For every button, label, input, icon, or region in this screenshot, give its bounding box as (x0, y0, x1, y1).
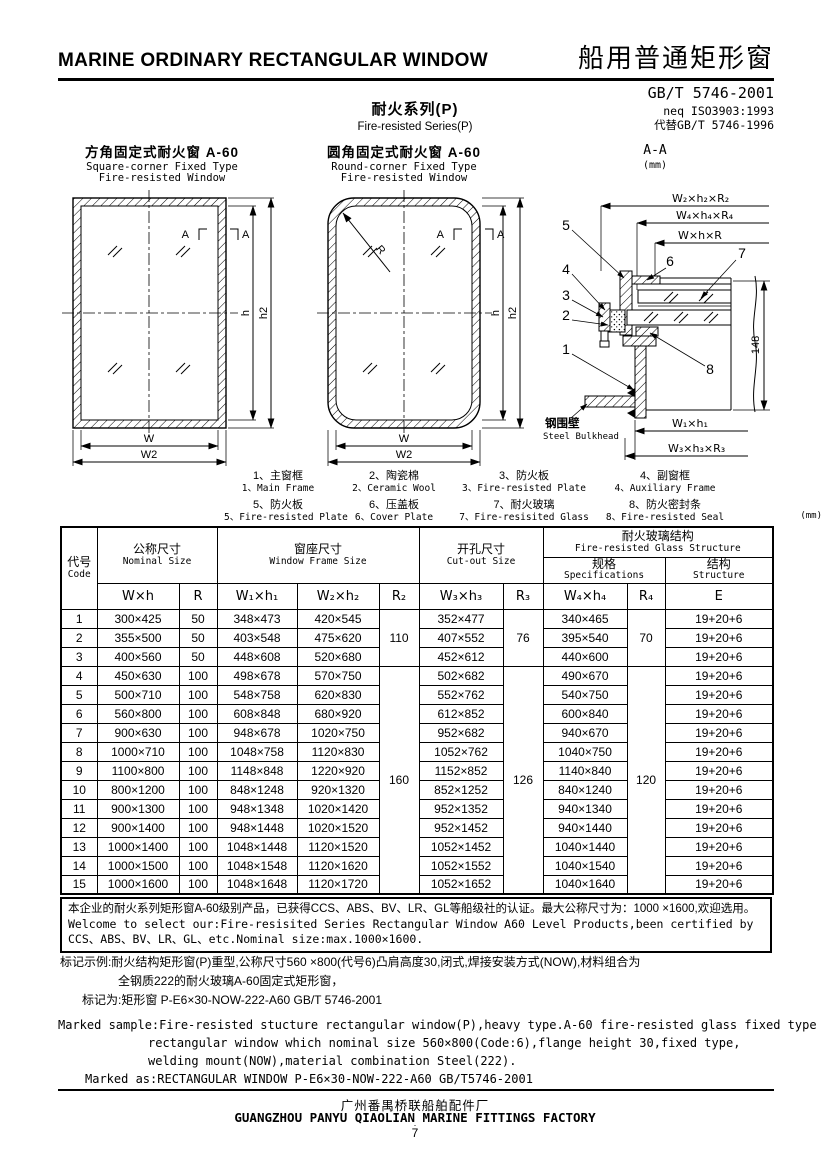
cell-wh: 300×425 (97, 609, 179, 628)
cell-w1h1: 1048×1648 (217, 875, 297, 894)
table-header-groups: 代号Code 公称尺寸Nominal Size 窗座尺寸Window Frame… (61, 527, 773, 557)
cell-w4h4: 540×750 (543, 685, 627, 704)
cell-wh: 355×500 (97, 628, 179, 647)
cell-w1h1: 948×678 (217, 723, 297, 742)
marking-en-line4: Marked as:RECTANGULAR WINDOW P-E6×30-NOW… (58, 1070, 817, 1088)
cell-wh: 400×560 (97, 647, 179, 666)
cell-e: 19+20+6 (665, 685, 773, 704)
part-number-1: 1 (562, 341, 570, 357)
cell-w4h4: 1140×840 (543, 761, 627, 780)
cell-w4h4: 1040×1540 (543, 856, 627, 875)
section-a-a-figure: A-A (mm) W₂×h₂×R₂ W₄×h₄×R₄ W×h×R (543, 143, 770, 460)
legend-item-1: 1、主窗框1、Main Frame (224, 470, 332, 494)
cell-code: 9 (61, 761, 97, 780)
cell-r: 50 (179, 647, 217, 666)
part-number-3: 3 (562, 287, 570, 303)
header-rule (58, 78, 774, 81)
note-line-en2: CCS、ABS、BV、LR、GL、etc.Nominal size:max.10… (68, 932, 764, 947)
cell-w2h2: 520×680 (297, 647, 379, 666)
square-corner-window-figure: 方角固定式耐火窗 A-60 Square-corner Fixed Type F… (62, 144, 274, 466)
page-title-en: MARINE ORDINARY RECTANGULAR WINDOW (58, 50, 488, 72)
header-nominal-size: 公称尺寸Nominal Size (97, 527, 217, 583)
cell-w2h2: 570×750 (297, 666, 379, 685)
bulkhead-label-cn: 钢围壁 (545, 416, 580, 430)
cell-r: 100 (179, 818, 217, 837)
cell-w4h4: 340×465 (543, 609, 627, 628)
col-w2h2: W₂×h₂ (297, 583, 379, 609)
cell-r: 100 (179, 685, 217, 704)
cell-w4h4: 600×840 (543, 704, 627, 723)
cell-r: 100 (179, 875, 217, 894)
cell-code: 8 (61, 742, 97, 761)
cell-r: 50 (179, 628, 217, 647)
cell-r3-group: 126 (503, 666, 543, 894)
col-w4h4: W₄×h₄ (543, 583, 627, 609)
cell-e: 19+20+6 (665, 666, 773, 685)
dim-label-h: h (490, 310, 502, 316)
page-number: 7 (0, 1126, 830, 1140)
col-wh: W×h (97, 583, 179, 609)
marking-cn-line2: 全钢质222的耐火玻璃A-60固定式矩形窗， (60, 972, 640, 991)
cell-w1h1: 548×758 (217, 685, 297, 704)
round-corner-window-figure: 圆角固定式耐火窗 A-60 Round-corner Fixed Type Fi… (317, 144, 524, 466)
page-title-cn: 船用普通矩形窗 (578, 38, 774, 75)
series-title-cn: 耐火系列(P) (0, 98, 830, 119)
specification-table-wrap: 代号Code 公称尺寸Nominal Size 窗座尺寸Window Frame… (60, 526, 774, 895)
square-window-title-cn: 方角固定式耐火窗 A-60 (85, 144, 239, 160)
certification-note-box: 本企业的耐火系列矩形窗A-60级别产品，已获得CCS、ABS、BV、LR、GL等… (60, 897, 772, 953)
cell-r2-group: 160 (379, 666, 419, 894)
legend-item-6: 6、压盖板6、Cover Plate (338, 499, 450, 523)
cell-e: 19+20+6 (665, 647, 773, 666)
note-line-cn: 本企业的耐火系列矩形窗A-60级别产品，已获得CCS、ABS、BV、LR、GL等… (68, 902, 764, 917)
col-e: E (665, 583, 773, 609)
header-cutout-size: 开孔尺寸Cut-out Size (419, 527, 543, 583)
cell-wh: 500×710 (97, 685, 179, 704)
cell-code: 13 (61, 837, 97, 856)
cell-w1h1: 848×1248 (217, 780, 297, 799)
section-marker-a-right: A (497, 229, 505, 241)
cell-w4h4: 440×600 (543, 647, 627, 666)
header-structure: 结构Structure (665, 557, 773, 583)
cell-code: 6 (61, 704, 97, 723)
section-unit: (mm) (643, 160, 667, 171)
cell-w3h3: 1152×852 (419, 761, 503, 780)
cell-w1h1: 498×678 (217, 666, 297, 685)
cell-wh: 900×1300 (97, 799, 179, 818)
cell-r: 100 (179, 780, 217, 799)
cell-r: 100 (179, 704, 217, 723)
marking-cn-line1: 标记示例:耐火结构矩形窗(P)重型,公称尺寸560 ×800(代号6)凸肩高度3… (60, 953, 640, 972)
bulkhead-label-en: Steel Bulkhead (543, 432, 619, 442)
cell-w3h3: 407×552 (419, 628, 503, 647)
cell-w1h1: 1148×848 (217, 761, 297, 780)
cell-code: 1 (61, 609, 97, 628)
cell-r3-group: 76 (503, 609, 543, 666)
cell-w3h3: 1052×1452 (419, 837, 503, 856)
cell-code: 10 (61, 780, 97, 799)
cell-w1h1: 1048×758 (217, 742, 297, 761)
section-title: A-A (643, 143, 667, 158)
cell-w3h3: 1052×1552 (419, 856, 503, 875)
dim-label-w: W (144, 433, 155, 445)
cell-w4h4: 940×1340 (543, 799, 627, 818)
cell-r: 100 (179, 856, 217, 875)
section-marker-a-left: A (437, 229, 445, 241)
cell-e: 19+20+6 (665, 837, 773, 856)
marking-en-line3: welding mount(NOW),material combination … (58, 1052, 817, 1070)
cell-w4h4: 1040×750 (543, 742, 627, 761)
document-page: MARINE ORDINARY RECTANGULAR WINDOW 船用普通矩… (0, 0, 830, 1175)
parts-legend: 1、主窗框1、Main Frame 2、陶瓷棉2、Ceramic Wool 3、… (224, 470, 694, 523)
cell-w4h4: 940×670 (543, 723, 627, 742)
dim-label-h2: h2 (507, 307, 519, 319)
marking-example-en: Marked sample:Fire-resisted stucture rec… (58, 1016, 817, 1088)
cell-w2h2: 420×545 (297, 609, 379, 628)
cell-e: 19+20+6 (665, 761, 773, 780)
note-line-en1: Welcome to select our:Fire-resisited Ser… (68, 917, 764, 932)
header-window-frame-size: 窗座尺寸Window Frame Size (217, 527, 419, 583)
cell-w2h2: 475×620 (297, 628, 379, 647)
marking-en-line1: Marked sample:Fire-resisted stucture rec… (58, 1016, 817, 1034)
marking-example-cn: 标记示例:耐火结构矩形窗(P)重型,公称尺寸560 ×800(代号6)凸肩高度3… (60, 953, 640, 1011)
cell-e: 19+20+6 (665, 875, 773, 894)
cell-w2h2: 620×830 (297, 685, 379, 704)
cell-code: 12 (61, 818, 97, 837)
table-row: 1 300×425 50 348×473 420×545 110 352×477… (61, 609, 773, 628)
cell-w2h2: 1020×1420 (297, 799, 379, 818)
cell-e: 19+20+6 (665, 780, 773, 799)
cell-w3h3: 1052×762 (419, 742, 503, 761)
part-number-7: 7 (738, 245, 746, 261)
cell-code: 15 (61, 875, 97, 894)
part-number-8: 8 (706, 361, 714, 377)
dim-label-w: W (399, 433, 410, 445)
cell-r: 100 (179, 799, 217, 818)
cell-w1h1: 1048×1448 (217, 837, 297, 856)
dim-label-w1h1: W₁×h₁ (672, 417, 708, 430)
dim-label-w2h2r2: W₂×h₂×R₂ (672, 192, 729, 205)
cell-r4-group: 120 (627, 666, 665, 894)
cell-e: 19+20+6 (665, 723, 773, 742)
part-number-4: 4 (562, 261, 570, 277)
cell-w1h1: 1048×1548 (217, 856, 297, 875)
cell-r: 100 (179, 723, 217, 742)
cell-r: 100 (179, 742, 217, 761)
cell-r: 50 (179, 609, 217, 628)
cell-w4h4: 840×1240 (543, 780, 627, 799)
cell-w3h3: 502×682 (419, 666, 503, 685)
cell-w3h3: 552×762 (419, 685, 503, 704)
col-r2: R₂ (379, 583, 419, 609)
cell-r: 100 (179, 666, 217, 685)
cell-w1h1: 608×848 (217, 704, 297, 723)
header-glass-structure: 耐火玻璃结构Fire-resisted Glass Structure (543, 527, 773, 557)
cell-w2h2: 1120×1620 (297, 856, 379, 875)
legend-item-4: 4、副窗框4、Auxiliary Frame (598, 470, 732, 494)
cell-code: 2 (61, 628, 97, 647)
cell-wh: 1100×800 (97, 761, 179, 780)
header-code: 代号Code (61, 527, 97, 609)
marking-cn-line3: 标记为:矩形窗 P-E6×30-NOW-222-A60 GB/T 5746-20… (60, 991, 640, 1010)
cell-w4h4: 940×1440 (543, 818, 627, 837)
cell-wh: 900×630 (97, 723, 179, 742)
cell-e: 19+20+6 (665, 856, 773, 875)
series-title-en: Fire-resisted Series(P) (0, 121, 830, 133)
specification-table: 代号Code 公称尺寸Nominal Size 窗座尺寸Window Frame… (60, 526, 774, 895)
dim-label-w2: W2 (396, 449, 413, 461)
cell-w4h4: 490×670 (543, 666, 627, 685)
col-w1h1: W₁×h₁ (217, 583, 297, 609)
dim-label-w2: W2 (141, 449, 158, 461)
cell-wh: 560×800 (97, 704, 179, 723)
cell-w3h3: 1052×1652 (419, 875, 503, 894)
technical-drawings: 方角固定式耐火窗 A-60 Square-corner Fixed Type F… (58, 138, 790, 472)
cell-w4h4: 1040×1440 (543, 837, 627, 856)
cell-w1h1: 948×1448 (217, 818, 297, 837)
part-number-6: 6 (666, 253, 674, 269)
table-row: 4 450×630 100 498×678 570×750 160 502×68… (61, 666, 773, 685)
cell-wh: 1000×1600 (97, 875, 179, 894)
cell-w2h2: 1220×920 (297, 761, 379, 780)
cell-e: 19+20+6 (665, 704, 773, 723)
part-number-5: 5 (562, 217, 570, 233)
cell-w3h3: 612×852 (419, 704, 503, 723)
cell-w3h3: 352×477 (419, 609, 503, 628)
marking-en-line2: rectangular window which nominal size 56… (58, 1034, 817, 1052)
col-w3h3: W₃×h₃ (419, 583, 503, 609)
cell-w2h2: 1120×1520 (297, 837, 379, 856)
cell-r: 100 (179, 761, 217, 780)
section-marker-a-right: A (242, 229, 250, 241)
section-marker-a-left: A (182, 229, 190, 241)
cell-wh: 800×1200 (97, 780, 179, 799)
legend-item-3: 3、防火板3、Fire-resisted Plate (456, 470, 592, 494)
cell-w1h1: 403×548 (217, 628, 297, 647)
cell-wh: 450×630 (97, 666, 179, 685)
cell-w3h3: 952×1352 (419, 799, 503, 818)
round-window-title-cn: 圆角固定式耐火窗 A-60 (327, 144, 481, 160)
table-unit-note: (mm) (800, 511, 822, 521)
table-header-units: W×h R W₁×h₁ W₂×h₂ R₂ W₃×h₃ R₃ W₄×h₄ R₄ E (61, 583, 773, 609)
legend-item-2: 2、陶瓷棉2、Ceramic Wool (338, 470, 450, 494)
round-window-title-en2: Fire-resisted Window (341, 172, 468, 184)
cell-e: 19+20+6 (665, 742, 773, 761)
cell-code: 7 (61, 723, 97, 742)
cell-w2h2: 680×920 (297, 704, 379, 723)
col-r: R (179, 583, 217, 609)
col-r4: R₄ (627, 583, 665, 609)
cell-r: 100 (179, 837, 217, 856)
part-number-2: 2 (562, 307, 570, 323)
cell-w3h3: 952×682 (419, 723, 503, 742)
cell-wh: 1000×1500 (97, 856, 179, 875)
cell-code: 11 (61, 799, 97, 818)
dim-label-w4h4r4: W₄×h₄×R₄ (676, 209, 734, 222)
dim-label-148: 148 (750, 336, 762, 354)
cell-w3h3: 852×1252 (419, 780, 503, 799)
legend-item-8: 8、防火密封条8、Fire-resisted Seal (598, 499, 732, 523)
dim-label-h2: h2 (258, 307, 270, 319)
cell-w2h2: 920×1320 (297, 780, 379, 799)
cell-w2h2: 1120×1720 (297, 875, 379, 894)
cell-wh: 900×1400 (97, 818, 179, 837)
series-title: 耐火系列(P) Fire-resisted Series(P) (0, 98, 830, 133)
dim-label-w3h3r3: W₃×h₃×R₃ (668, 442, 725, 455)
cell-w2h2: 1120×830 (297, 742, 379, 761)
footer-rule (58, 1089, 774, 1091)
cell-w2h2: 1020×750 (297, 723, 379, 742)
cell-w1h1: 448×608 (217, 647, 297, 666)
cell-wh: 1000×710 (97, 742, 179, 761)
header-specifications: 规格Specifications (543, 557, 665, 583)
cell-r4-group: 70 (627, 609, 665, 666)
cell-w1h1: 348×473 (217, 609, 297, 628)
square-window-title-en2: Fire-resisted Window (99, 172, 226, 184)
cell-w1h1: 948×1348 (217, 799, 297, 818)
col-r3: R₃ (503, 583, 543, 609)
cell-code: 14 (61, 856, 97, 875)
cell-wh: 1000×1400 (97, 837, 179, 856)
cell-e: 19+20+6 (665, 818, 773, 837)
legend-item-7: 7、耐火玻璃7、Fire-resisited Glass (456, 499, 592, 523)
cell-code: 4 (61, 666, 97, 685)
cell-w4h4: 1040×1640 (543, 875, 627, 894)
cell-code: 5 (61, 685, 97, 704)
cell-e: 19+20+6 (665, 628, 773, 647)
cell-w3h3: 952×1452 (419, 818, 503, 837)
dim-label-h: h (240, 310, 252, 316)
cell-e: 19+20+6 (665, 609, 773, 628)
cell-e: 19+20+6 (665, 799, 773, 818)
cell-r2-group: 110 (379, 609, 419, 666)
cell-w3h3: 452×612 (419, 647, 503, 666)
cell-w2h2: 1020×1520 (297, 818, 379, 837)
cell-w4h4: 395×540 (543, 628, 627, 647)
dim-label-whr: W×h×R (678, 229, 722, 242)
legend-item-5: 5、防火板5、Fire-resisted Plate (224, 499, 332, 523)
cell-code: 3 (61, 647, 97, 666)
